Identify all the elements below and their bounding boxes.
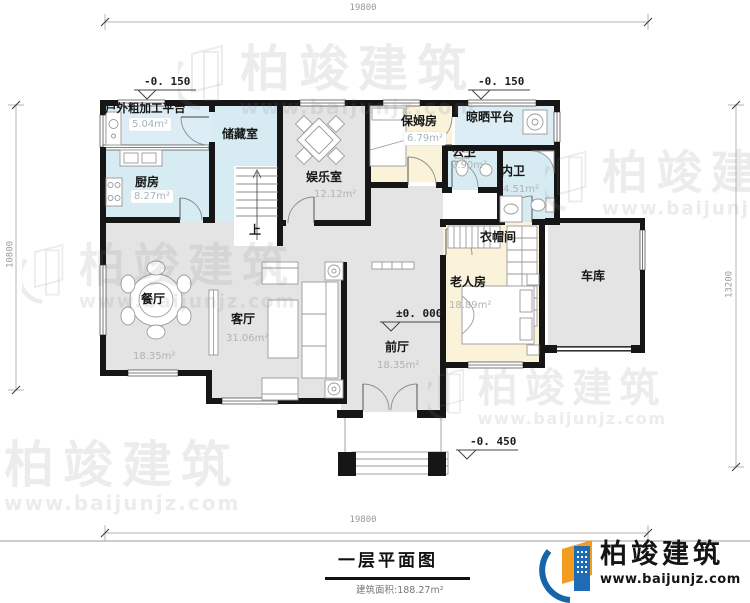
room-area-public-bath: 2.90m² — [451, 160, 487, 171]
plan-area-note: 建筑面积:188.27m² — [356, 586, 444, 596]
room-label-private-bath: 内卫 — [501, 165, 525, 177]
brand-website: www.baijunjz.com — [600, 573, 741, 586]
room-label-storage: 储藏室 — [222, 128, 258, 140]
room-area-nanny: 6.79m² — [404, 132, 446, 145]
brand-name: 柏竣建筑 — [600, 541, 724, 568]
room-area-platform: 5.04m² — [129, 118, 171, 131]
room-label-platform: 户外粗加工平台 — [105, 103, 186, 115]
plan-title-underline — [325, 577, 470, 580]
room-label-foyer: 前厅 — [385, 341, 409, 353]
room-area-elder-room: 18.89m² — [449, 300, 491, 311]
stairs-up-label: 上 — [249, 224, 261, 236]
room-label-elder-room: 老人房 — [450, 276, 486, 288]
room-label-garage: 车库 — [581, 270, 605, 282]
room-area-recreation: 12.12m² — [314, 189, 356, 200]
room-label-nanny: 保姆房 — [401, 115, 437, 127]
room-area-private-bath: 4.51m² — [503, 184, 539, 195]
dim-top: 19800 — [340, 4, 386, 13]
room-area-kitchen: 8.27m² — [131, 190, 173, 203]
dim-right: 13200 — [726, 262, 735, 308]
dim-left: 10800 — [7, 232, 16, 278]
level-entrance: -0. 450 — [470, 436, 516, 447]
room-area-living: 31.06m² — [226, 333, 268, 344]
room-label-living: 客厅 — [231, 313, 255, 325]
room-label-cloakroom: 衣帽间 — [480, 231, 516, 243]
plan-title: 一层平面图 — [338, 553, 438, 570]
level-drying: -0. 150 — [478, 76, 524, 87]
room-area-dining: 18.35m² — [133, 351, 175, 362]
floorplan-drawing — [0, 0, 750, 603]
room-area-foyer: 18.35m² — [377, 360, 419, 371]
level-indoor: ±0. 000 — [396, 308, 442, 319]
room-label-public-bath: 公卫 — [452, 146, 476, 158]
brand-logo-icon — [542, 540, 592, 600]
floorplan-sheet: 柏竣建筑 www.baijunjz.com 柏竣建筑 www.baijunjz.… — [0, 0, 750, 603]
level-platform: -0. 150 — [144, 76, 190, 87]
room-label-kitchen: 厨房 — [135, 176, 159, 188]
room-label-dining: 餐厅 — [141, 293, 165, 305]
room-label-recreation: 娱乐室 — [306, 171, 342, 183]
room-label-drying: 晾晒平台 — [466, 111, 514, 123]
dim-bottom: 19800 — [340, 516, 386, 525]
